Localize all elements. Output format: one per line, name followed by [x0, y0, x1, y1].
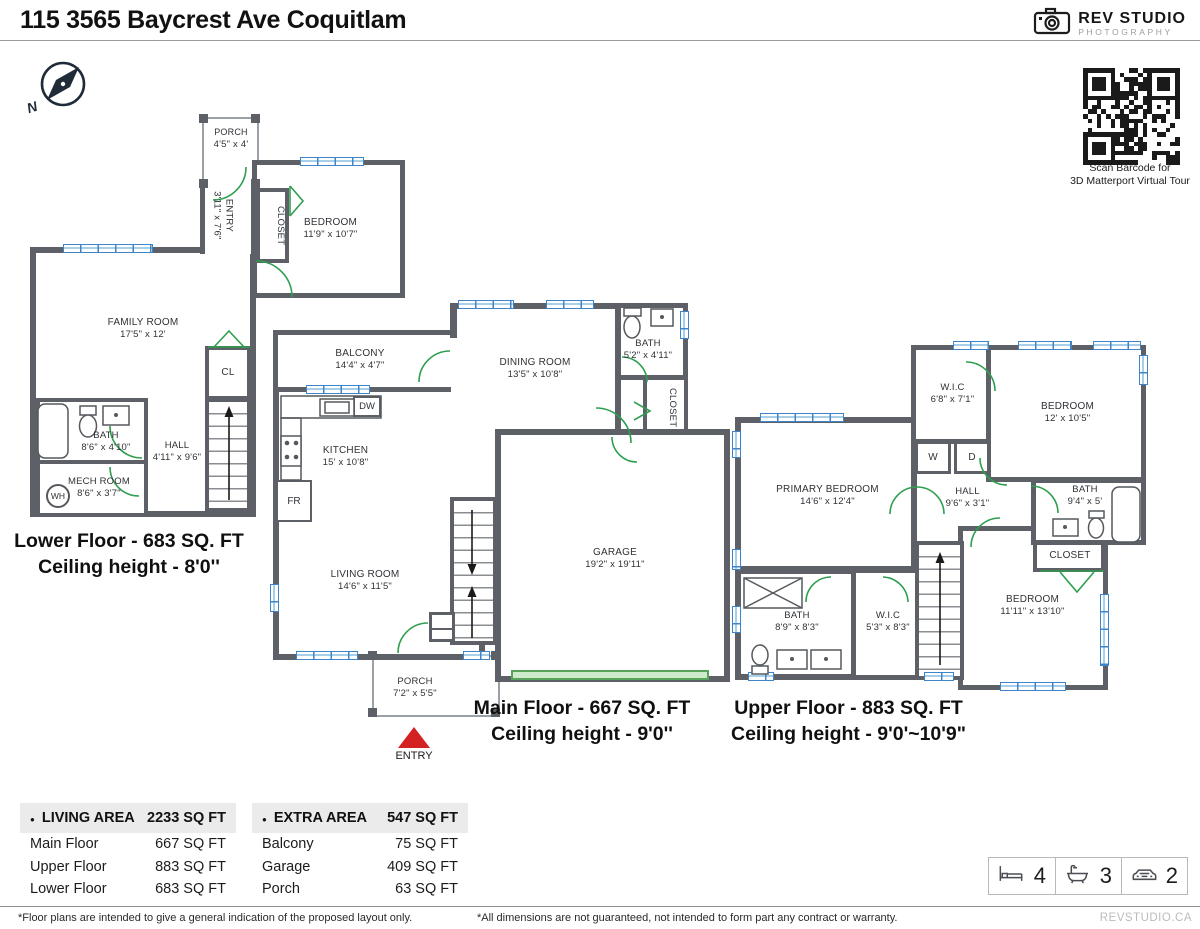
living-area-table: ●LIVING AREA 2233 SQ FT Main Floor667 SQ… — [20, 803, 236, 901]
label-upper-bedroom1: BEDROOM12' x 10'5" — [995, 400, 1140, 425]
page-title: 115 3565 Baycrest Ave Coquitlam — [20, 6, 406, 35]
label-main-closet: CLOSET — [652, 382, 678, 434]
label-lower-bath: BATH8'6" x 4'10" — [62, 430, 150, 455]
window — [296, 651, 358, 660]
upper-floor-caption: Upper Floor - 883 SQ. FTCeiling height -… — [731, 695, 966, 748]
bullet-icon: ● — [30, 815, 35, 824]
floorplan-page: 115 3565 Baycrest Ave Coquitlam REV STUD… — [0, 0, 1200, 929]
window — [680, 311, 689, 339]
living-area-total: 2233 SQ FT — [147, 810, 226, 826]
bullet-icon: ● — [262, 815, 267, 824]
label-main-porch: PORCH7'2" x 5'5" — [375, 676, 455, 701]
label-primary-bedroom: PRIMARY BEDROOM14'6" x 12'4" — [750, 483, 905, 508]
footer-note-left: *Floor plans are intended to give a gene… — [18, 912, 412, 924]
window — [306, 385, 370, 394]
table-row: Garage409 SQ FT — [252, 856, 468, 879]
bath-icon — [1065, 863, 1090, 889]
main-stairs — [450, 497, 497, 645]
main-floor-caption: Main Floor - 667 SQ. FTCeiling height - … — [467, 695, 697, 748]
fridge-box: FR — [276, 480, 312, 522]
window — [1018, 341, 1072, 350]
label-upper-wic1: W.I.C6'8" x 7'1" — [915, 382, 990, 407]
label-family-room: FAMILY ROOM17'5" x 12' — [58, 316, 228, 341]
camera-icon — [1033, 6, 1071, 41]
window — [1093, 341, 1141, 350]
label-upper-bath1: BATH9'4" x 5' — [1045, 484, 1125, 509]
garage-door — [511, 670, 709, 680]
table-row: Balcony75 SQ FT — [252, 833, 468, 856]
window — [463, 651, 490, 660]
baths-stat: 3 — [1055, 858, 1121, 894]
footer-note-right: *All dimensions are not guaranteed, not … — [477, 912, 897, 924]
label-upper-bath2: BATH8'9" x 8'3" — [757, 610, 837, 635]
table-row: Upper Floor883 SQ FT — [20, 856, 236, 879]
label-living-room: LIVING ROOM14'6" x 11'5" — [290, 568, 440, 593]
window — [458, 300, 514, 309]
extra-area-total: 547 SQ FT — [387, 810, 458, 826]
beds-stat: 4 — [989, 858, 1055, 894]
window — [270, 584, 279, 612]
table-row: Main Floor667 SQ FT — [20, 833, 236, 856]
window — [760, 413, 844, 422]
window — [748, 672, 774, 681]
label-upper-bedroom2: BEDROOM11'11" x 13'10" — [965, 593, 1100, 618]
label-lower-porch: PORCH4'5" x 4' — [202, 127, 260, 151]
entry-label: ENTRY — [383, 750, 445, 762]
bed-icon — [998, 864, 1024, 888]
window — [953, 341, 989, 350]
label-mech-room: MECH ROOM8'6" x 3'7" — [46, 476, 152, 501]
qr-code — [1083, 68, 1178, 163]
table-row: Lower Floor683 SQ FT — [20, 878, 236, 901]
label-upper-closet: CLOSET — [1038, 549, 1102, 562]
window — [63, 244, 153, 253]
label-lower-entry: ENTRY3'11" x 7'6" — [210, 167, 235, 263]
extra-area-table: ●EXTRA AREA 547 SQ FT Balcony75 SQ FT Ga… — [252, 803, 468, 901]
window — [1000, 682, 1066, 691]
property-stats: 4 3 2 — [988, 857, 1188, 895]
label-upper-wic2: W.I.C5'3" x 8'3" — [848, 610, 928, 635]
label-lower-bedroom: BEDROOM11'9" x 10'7" — [268, 216, 393, 241]
washer-box: W — [915, 441, 951, 474]
logo-subtitle: PHOTOGRAPHY — [1078, 27, 1186, 37]
dryer-box: D — [954, 441, 990, 474]
window — [300, 157, 364, 166]
footer-brand: REVSTUDIO.CA — [1100, 912, 1192, 924]
label-dining-room: DINING ROOM13'5" x 10'8" — [455, 356, 615, 381]
entry-arrow-icon — [398, 727, 430, 748]
qr-caption-line1: Scan Barcode for — [1055, 162, 1200, 175]
stair-landing — [429, 612, 455, 642]
car-icon — [1131, 865, 1158, 888]
label-lower-hall: HALL4'11" x 9'6" — [138, 440, 216, 465]
window — [546, 300, 594, 309]
window — [1100, 594, 1109, 666]
label-lower-cl: CL — [206, 366, 250, 379]
table-row: Porch63 SQ FT — [252, 878, 468, 901]
lower-floor-caption: Lower Floor - 683 SQ. FTCeiling height -… — [14, 528, 244, 581]
window — [732, 549, 741, 570]
dishwasher-box: DW — [353, 396, 381, 417]
header-divider — [0, 40, 1200, 41]
window — [1139, 355, 1148, 385]
label-main-bath: BATH5'2" x 4'11" — [612, 338, 684, 363]
label-garage: GARAGE19'2" x 19'11" — [540, 546, 690, 571]
logo-name: REV STUDIO — [1078, 10, 1186, 28]
window — [732, 606, 741, 633]
compass-icon — [30, 58, 92, 119]
cars-stat: 2 — [1121, 858, 1187, 894]
window — [732, 431, 741, 458]
rev-studio-logo: REV STUDIO PHOTOGRAPHY — [1033, 6, 1186, 41]
window — [924, 672, 954, 681]
label-kitchen: KITCHEN15' x 10'8" — [298, 444, 393, 469]
extra-area-header: ●EXTRA AREA 547 SQ FT — [252, 803, 468, 833]
footer-divider — [0, 906, 1200, 907]
living-area-header: ●LIVING AREA 2233 SQ FT — [20, 803, 236, 833]
label-balcony: BALCONY14'4" x 4'7" — [300, 347, 420, 372]
qr-caption-line2: 3D Matterport Virtual Tour — [1055, 175, 1200, 188]
label-upper-hall: HALL9'6" x 3'1" — [925, 486, 1010, 511]
